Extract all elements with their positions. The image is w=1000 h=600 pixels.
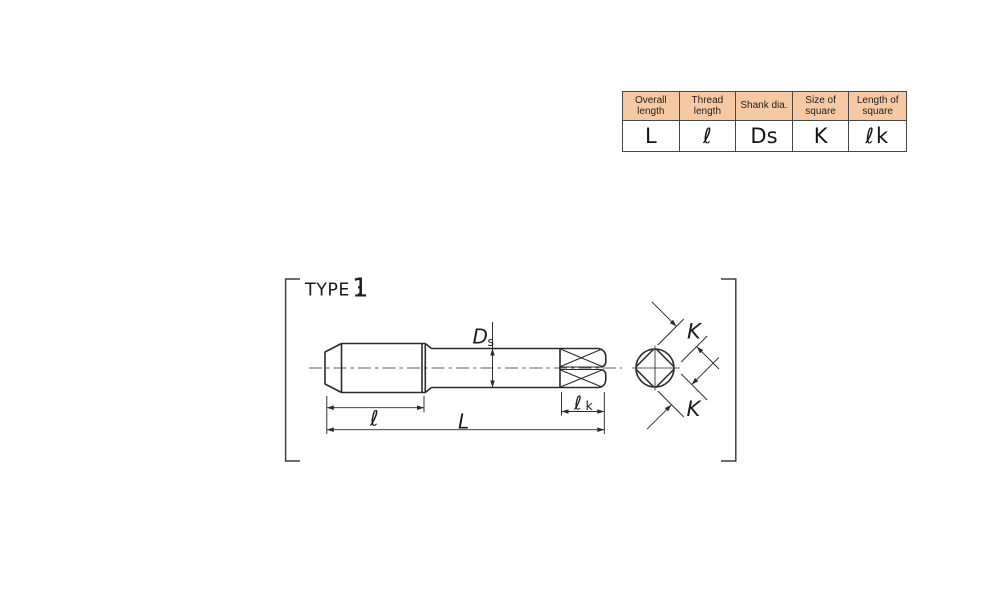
symbol-length-of-square: ℓk — [849, 121, 906, 151]
arrow — [327, 427, 334, 432]
arrow — [562, 409, 569, 414]
thread-length-label: ℓ — [369, 407, 379, 431]
bracket-right — [721, 279, 736, 461]
arrow — [597, 427, 604, 432]
end-view-crosshair — [632, 346, 680, 391]
column-header-thread-length: Thread length — [680, 92, 737, 121]
column-header-overall-length: Overall length — [623, 92, 680, 121]
page: Overall length Thread length Shank dia. … — [0, 0, 1000, 600]
column-header-shank-dia: Shank dia. — [736, 92, 793, 121]
shank-dia-subscript: s — [488, 334, 495, 349]
column-header-length-of-square: Length of square — [849, 92, 906, 121]
spec-table: Overall length Thread length Shank dia. … — [622, 91, 907, 152]
square-section-end-top — [599, 349, 606, 368]
square-size-label-bottom: K — [687, 397, 703, 421]
symbol-thread-length: ℓ — [680, 121, 737, 151]
symbol-shank-dia: Ds — [736, 121, 793, 151]
arrow — [327, 405, 334, 410]
square-length-label: ℓ — [573, 393, 582, 415]
shank-dia-label: D — [473, 325, 488, 349]
arrow — [597, 409, 604, 414]
arrow — [417, 405, 424, 410]
bracket-left — [286, 279, 300, 461]
arrow — [490, 381, 495, 388]
technical-drawing: TYPE : 1 — [270, 262, 750, 474]
square-size-label-top: K — [687, 320, 703, 344]
square-dim-stubs-top — [652, 302, 719, 369]
column-header-size-of-square: Size of square — [793, 92, 850, 121]
end-view: K K — [632, 302, 719, 429]
symbol-size-of-square: K — [793, 121, 850, 151]
thread-end-faces — [422, 344, 425, 393]
symbol-overall-length: L — [623, 121, 680, 151]
type-number: 1 — [352, 274, 369, 304]
square-length-subscript: k — [586, 398, 594, 413]
overall-length-label: L — [458, 410, 469, 434]
arrow — [490, 349, 495, 356]
square-section-end-bottom — [599, 370, 606, 388]
